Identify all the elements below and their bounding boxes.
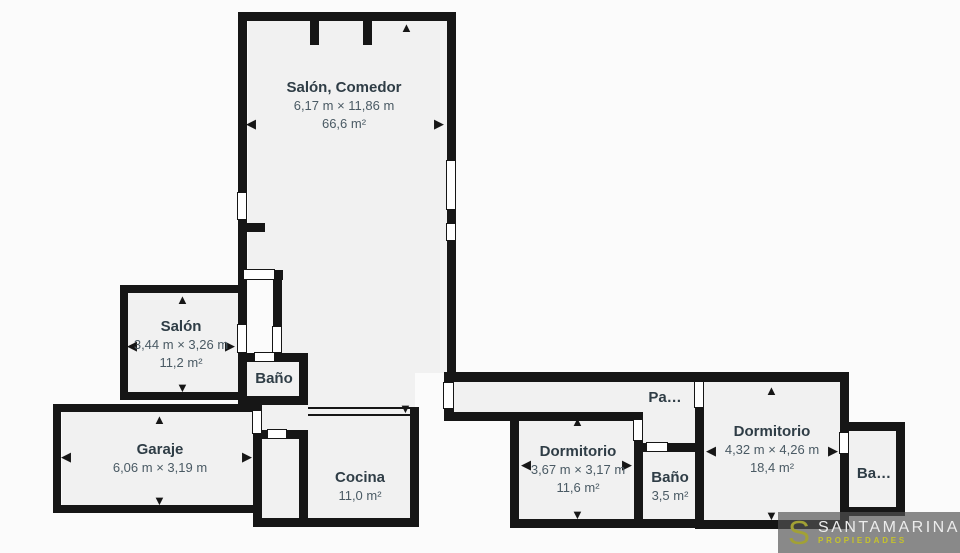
dimension-arrow-up: ▲ bbox=[176, 293, 189, 306]
room-name: Salón bbox=[134, 318, 228, 336]
room-dimensions: 4,32 m × 4,26 m bbox=[725, 441, 819, 459]
dimension-arrow-down: ▼ bbox=[571, 508, 584, 521]
dimension-arrow-up: ▲ bbox=[765, 384, 778, 397]
room-area: 11,0 m² bbox=[335, 487, 385, 505]
room-label-bano-2: Baño 3,5 m² bbox=[651, 469, 689, 505]
vestibule-floor bbox=[247, 280, 273, 353]
room-name: Salón, Comedor bbox=[286, 79, 401, 97]
door-opening bbox=[633, 419, 643, 441]
wall bbox=[510, 412, 519, 528]
dimension-arrow-down: ▼ bbox=[399, 402, 412, 415]
room-dimensions: 6,17 m × 11,86 m bbox=[286, 97, 401, 115]
brand-name: SANTAMARINA bbox=[818, 519, 960, 536]
room-name: Ba… bbox=[857, 465, 891, 483]
room-label-bano-3: Ba… bbox=[857, 465, 891, 483]
dimension-arrow-down: ▼ bbox=[176, 381, 189, 394]
room-area: 11,2 m² bbox=[134, 354, 228, 372]
door-opening bbox=[267, 429, 287, 439]
room-label-bano-1: Baño bbox=[255, 370, 293, 388]
room-label-cocina: Cocina 11,0 m² bbox=[335, 469, 385, 505]
wall bbox=[53, 404, 262, 412]
room-name: Pa… bbox=[648, 389, 681, 407]
wall-stub bbox=[310, 21, 319, 45]
dimension-arrow-right: ▶ bbox=[828, 444, 838, 457]
wall bbox=[299, 438, 308, 527]
room-label-salon-comedor: Salón, Comedor 6,17 m × 11,86 m 66,6 m² bbox=[286, 79, 401, 133]
door-opening bbox=[694, 381, 704, 408]
brand-text: SANTAMARINA PROPIEDADES bbox=[818, 519, 960, 546]
wall bbox=[634, 519, 704, 528]
room-name: Dormitorio bbox=[531, 443, 625, 461]
door-opening bbox=[252, 410, 262, 434]
wall-stub bbox=[247, 223, 265, 232]
room-dimensions: 6,06 m × 3,19 m bbox=[113, 459, 207, 477]
room-label-dormitorio-1: Dormitorio 3,67 m × 3,17 m 11,6 m² bbox=[531, 443, 625, 497]
room-label-salon: Salón 3,44 m × 3,26 m 11,2 m² bbox=[134, 318, 228, 372]
door-opening bbox=[243, 269, 275, 280]
window-opening bbox=[237, 192, 247, 220]
dimension-arrow-up: ▲ bbox=[400, 21, 413, 34]
room-area: 66,6 m² bbox=[286, 115, 401, 133]
window-opening bbox=[446, 223, 456, 241]
wall bbox=[634, 443, 704, 452]
dimension-arrow-up: ▲ bbox=[153, 413, 166, 426]
dimension-arrow-left: ◀ bbox=[706, 444, 716, 457]
room-name: Cocina bbox=[335, 469, 385, 487]
room-name: Baño bbox=[651, 469, 689, 487]
room-dimensions: 3,67 m × 3,17 m bbox=[531, 461, 625, 479]
wall-stub bbox=[363, 21, 372, 45]
wall bbox=[253, 518, 419, 527]
dimension-arrow-right: ▶ bbox=[242, 450, 252, 463]
door-opening bbox=[237, 324, 247, 353]
room-label-dormitorio-2: Dormitorio 4,32 m × 4,26 m 18,4 m² bbox=[725, 423, 819, 477]
watermark-band: S SANTAMARINA PROPIEDADES bbox=[778, 512, 960, 553]
wall bbox=[238, 12, 247, 270]
dimension-arrow-down: ▼ bbox=[153, 494, 166, 507]
brand-logo-icon: S bbox=[788, 518, 810, 548]
floor-plan: ▲ ◀ ▶ ▲ ▼ ◀ ▶ ▲ ▼ ◀ ▶ ▼ ▲ ▼ ◀ ▶ ▲ ▼ ◀ ▶ … bbox=[0, 0, 960, 553]
room-name: Dormitorio bbox=[725, 423, 819, 441]
door-opening bbox=[254, 352, 275, 362]
door-opening bbox=[839, 432, 849, 454]
wall bbox=[444, 372, 849, 382]
room-name: Garaje bbox=[113, 441, 207, 459]
room-area: 18,4 m² bbox=[725, 459, 819, 477]
wall bbox=[53, 404, 61, 513]
wall bbox=[896, 422, 905, 516]
room-label-pasillo: Pa… bbox=[648, 389, 681, 407]
open-wall-line bbox=[308, 407, 410, 416]
window-opening bbox=[446, 160, 456, 210]
brand-tagline: PROPIEDADES bbox=[818, 536, 960, 546]
dimension-arrow-left: ◀ bbox=[61, 450, 71, 463]
room-label-garaje: Garaje 6,06 m × 3,19 m bbox=[113, 441, 207, 477]
room-name: Baño bbox=[255, 370, 293, 388]
dimension-arrow-left: ◀ bbox=[521, 458, 531, 471]
dimension-arrow-down: ▼ bbox=[765, 509, 778, 522]
room-dimensions: 3,44 m × 3,26 m bbox=[134, 336, 228, 354]
room-area: 11,6 m² bbox=[531, 479, 625, 497]
dimension-arrow-left: ◀ bbox=[246, 117, 256, 130]
wall bbox=[238, 12, 456, 21]
dimension-arrow-up: ▲ bbox=[571, 415, 584, 428]
door-opening bbox=[272, 326, 282, 353]
dimension-arrow-right: ▶ bbox=[434, 117, 444, 130]
wall bbox=[410, 407, 419, 527]
wall bbox=[444, 412, 643, 421]
room-area: 3,5 m² bbox=[651, 487, 689, 505]
door-opening bbox=[443, 382, 454, 409]
door-opening bbox=[646, 442, 668, 452]
